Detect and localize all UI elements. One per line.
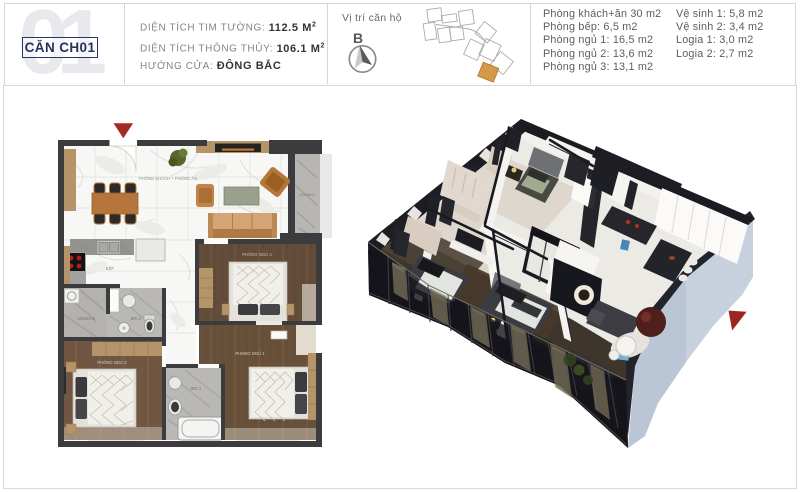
svg-text:LOGIA 2: LOGIA 2 (78, 316, 95, 321)
svg-text:WC 1: WC 1 (191, 386, 202, 391)
svg-text:PHÒNG KHÁCH + PHÒNG ĂN: PHÒNG KHÁCH + PHÒNG ĂN (139, 176, 197, 181)
svg-text:LOGIA 1: LOGIA 1 (299, 192, 315, 197)
svg-text:WC 2: WC 2 (131, 316, 142, 321)
svg-text:PHÒNG NGỦ 2: PHÒNG NGỦ 2 (97, 360, 127, 365)
svg-text:BẾP: BẾP (106, 266, 115, 271)
svg-text:PHÒNG NGỦ 3: PHÒNG NGỦ 3 (242, 252, 272, 257)
svg-text:PHÒNG NGỦ 1: PHÒNG NGỦ 1 (235, 351, 265, 356)
